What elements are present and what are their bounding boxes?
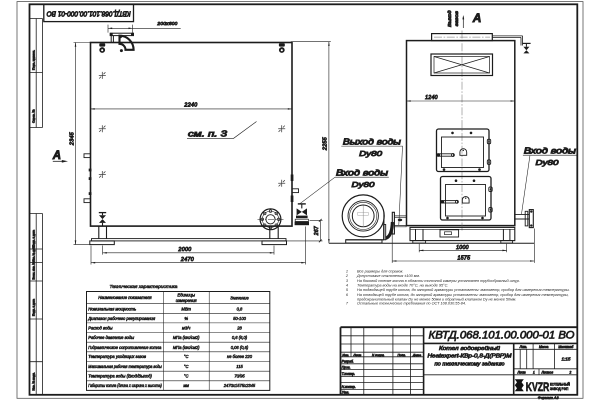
svg-text:Н.контр.: Н.контр. bbox=[342, 385, 356, 389]
svg-text:Лист: Лист bbox=[352, 353, 361, 357]
svg-text:Все размеры для справок.: Все размеры для справок. bbox=[357, 269, 404, 273]
svg-text:КВТД.068.101.00.000-01 ВО: КВТД.068.101.00.000-01 ВО bbox=[46, 9, 130, 18]
svg-text:2470: 2470 bbox=[180, 257, 194, 263]
svg-text:2: 2 bbox=[569, 370, 572, 374]
svg-text:Разраб.: Разраб. bbox=[342, 359, 354, 363]
svg-text:Техническая характеристика: Техническая характеристика bbox=[110, 284, 178, 290]
svg-text:Инв. № дубл.: Инв. № дубл. bbox=[32, 245, 36, 261]
svg-text:Инв. № подл.: Инв. № подл. bbox=[32, 372, 36, 390]
svg-text:0,06 (0,6): 0,06 (0,6) bbox=[231, 345, 249, 350]
svg-text:м3/ч: м3/ч bbox=[182, 326, 191, 331]
svg-text:KVZR: KVZR bbox=[526, 380, 550, 394]
svg-text:Пров.: Пров. bbox=[342, 365, 351, 369]
svg-text:газов: газов bbox=[454, 10, 459, 26]
svg-text:не более 220: не более 220 bbox=[227, 354, 253, 359]
svg-text:70/95: 70/95 bbox=[234, 373, 245, 378]
svg-text:°С: °С bbox=[184, 364, 189, 369]
svg-text:Котел водогрейный: Котел водогрейный bbox=[439, 345, 500, 352]
svg-text:Номинальная мощность: Номинальная мощность bbox=[88, 306, 136, 311]
svg-text:1240: 1240 bbox=[425, 95, 438, 101]
svg-text:Справ. №: Справ. № bbox=[32, 109, 36, 123]
svg-text:Dу80: Dу80 bbox=[536, 158, 560, 167]
svg-text:На отводящей трубе котла, до з: На отводящей трубе котла, до запорной ар… bbox=[357, 293, 569, 297]
svg-text:Единицы: Единицы bbox=[177, 293, 195, 298]
svg-text:2255: 2255 bbox=[323, 137, 329, 151]
svg-text:Утв.: Утв. bbox=[342, 391, 350, 395]
svg-text:Максимальная рабочая температу: Максимальная рабочая температура воды bbox=[88, 364, 162, 369]
svg-text:Масса: Масса bbox=[539, 345, 549, 349]
svg-text:ЗАВОД РЭП: ЗАВОД РЭП bbox=[550, 387, 569, 391]
svg-text:0,8: 0,8 bbox=[237, 306, 243, 311]
svg-text:28: 28 bbox=[236, 326, 242, 331]
svg-text:Т.контр.: Т.контр. bbox=[342, 372, 355, 376]
svg-text:Подп. и дата: Подп. и дата bbox=[32, 230, 36, 247]
svg-text:по техническому заданию: по техническому заданию bbox=[435, 362, 505, 368]
svg-text:мм: мм bbox=[183, 383, 189, 388]
svg-text:Рабочее давление воды: Рабочее давление воды bbox=[88, 335, 134, 340]
svg-text:МПа (кгс/см2): МПа (кгс/см2) bbox=[173, 335, 200, 340]
svg-text:%: % bbox=[184, 316, 188, 321]
svg-text:Лит.: Лит. bbox=[519, 345, 528, 349]
svg-text:Остальные технические требован: Остальные технические требования по ОСТ … bbox=[357, 302, 466, 306]
svg-text:267: 267 bbox=[314, 226, 320, 236]
svg-text:Значение: Значение bbox=[230, 295, 249, 300]
svg-text:°С: °С bbox=[184, 373, 189, 378]
svg-text:Dу80: Dу80 bbox=[352, 180, 376, 189]
svg-text:Габариты котла (длина х ширина: Габариты котла (длина х ширина х высота) bbox=[88, 383, 162, 388]
svg-text:Подп.: Подп. bbox=[397, 353, 405, 357]
svg-text:Вход воды: Вход воды bbox=[336, 169, 388, 178]
svg-text:Вход воды: Вход воды bbox=[524, 147, 576, 156]
svg-text:измерения: измерения bbox=[176, 298, 198, 303]
svg-text:2240: 2240 bbox=[183, 102, 197, 108]
svg-text:А: А bbox=[472, 11, 482, 25]
svg-text:Heatexpert-КВр-0,8-Д(РВР)М: Heatexpert-КВр-0,8-Д(РВР)М bbox=[428, 354, 513, 360]
svg-text:На боковой стенке котла в обла: На боковой стенке котла в области топочн… bbox=[357, 279, 520, 283]
svg-text:Перв. примен.: Перв. примен. bbox=[32, 50, 36, 70]
svg-text:1575: 1575 bbox=[458, 255, 471, 261]
svg-text:см. п. 3: см. п. 3 bbox=[188, 130, 228, 139]
svg-text:0,6 (6,0): 0,6 (6,0) bbox=[232, 335, 248, 340]
svg-text:Масштаб: Масштаб bbox=[558, 345, 573, 349]
svg-text:предохранительный клапан Dу н: предохранительный клапан Dу не менее 50м… bbox=[357, 297, 516, 301]
svg-text:200х600: 200х600 bbox=[156, 21, 177, 27]
svg-text:КВТД.068.101.00.000-01 ВО: КВТД.068.101.00.000-01 ВО bbox=[429, 330, 575, 342]
svg-text:2470х1575х2345: 2470х1575х2345 bbox=[223, 383, 256, 388]
svg-text:Лист: Лист bbox=[517, 370, 527, 374]
svg-text:1: 1 bbox=[533, 370, 535, 374]
svg-text:Выход: Выход bbox=[447, 10, 452, 27]
svg-text:1:15: 1:15 bbox=[562, 357, 571, 362]
svg-text:Допустимые отклонения ±100 мм: Допустимые отклонения ±100 мм. bbox=[356, 274, 420, 278]
svg-text:2345: 2345 bbox=[70, 132, 76, 146]
svg-text:Диапазон рабочего регулировани: Диапазон рабочего регулирования bbox=[87, 316, 156, 321]
svg-text:Расход воды: Расход воды bbox=[88, 326, 112, 331]
svg-text:МВт: МВт bbox=[181, 306, 191, 311]
svg-text:Температура воды на входе 70°: Температура воды на входе 70°С, на выход… bbox=[357, 284, 448, 288]
svg-text:Наименование показателя: Наименование показателя bbox=[98, 295, 152, 300]
svg-text:Взам. инв. №: Взам. инв. № bbox=[32, 262, 36, 280]
svg-text:4: 4 bbox=[346, 284, 348, 288]
svg-text:°С: °С bbox=[184, 354, 189, 359]
svg-text:115: 115 bbox=[236, 364, 243, 369]
svg-text:Формат А3: Формат А3 bbox=[538, 396, 560, 400]
svg-text:N докум.: N докум. bbox=[372, 353, 385, 357]
svg-text:Изм.: Изм. bbox=[342, 353, 349, 357]
svg-text:Температура воды (Вход/Выход): Температура воды (Вход/Выход) bbox=[88, 373, 152, 378]
svg-text:Выход воды: Выход воды bbox=[343, 138, 401, 147]
svg-text:1: 1 bbox=[346, 269, 348, 273]
svg-text:Дата: Дата bbox=[412, 353, 421, 357]
svg-text:50-100: 50-100 bbox=[233, 316, 246, 321]
svg-text:1000: 1000 bbox=[456, 245, 469, 251]
svg-text:А: А bbox=[52, 150, 61, 162]
svg-text:Температура уходящих газов: Температура уходящих газов bbox=[88, 354, 147, 359]
svg-text:Подп. и дата: Подп. и дата bbox=[32, 299, 36, 316]
svg-text:2000: 2000 bbox=[177, 247, 191, 253]
svg-text:Dу80: Dу80 bbox=[359, 149, 383, 158]
svg-text:На подводящей трубе котла, до: На подводящей трубе котла, до запорной а… bbox=[357, 288, 570, 292]
svg-text:Гидравлическое сопротивление к: Гидравлическое сопротивление котла bbox=[88, 345, 162, 350]
svg-text:МПа (кгс/см2): МПа (кгс/см2) bbox=[173, 345, 200, 350]
svg-text:КОТЕЛЬНЫЙ: КОТЕЛЬНЫЙ bbox=[550, 382, 571, 386]
svg-text:Листов: Листов bbox=[541, 370, 554, 374]
